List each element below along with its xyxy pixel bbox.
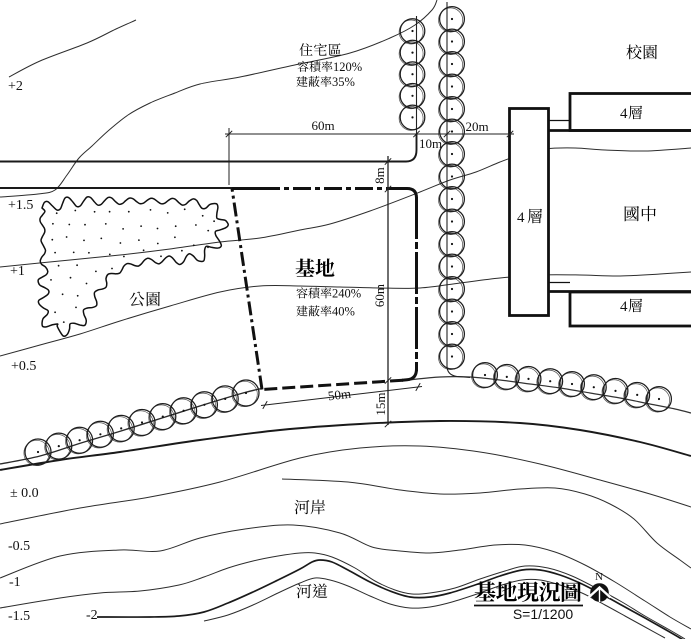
- svg-text:-1.5: -1.5: [8, 609, 30, 624]
- svg-text:+2: +2: [8, 79, 23, 94]
- svg-text:-0.5: -0.5: [8, 539, 30, 554]
- svg-text:+1: +1: [10, 264, 25, 279]
- svg-text:-2: -2: [86, 608, 98, 623]
- svg-text:10m: 10m: [419, 136, 442, 151]
- svg-text:4: 4: [620, 106, 628, 122]
- svg-text:60m: 60m: [311, 118, 334, 133]
- svg-text:240%: 240%: [332, 287, 361, 301]
- svg-text:± 0.0: ± 0.0: [10, 486, 39, 501]
- svg-text:15m: 15m: [373, 392, 388, 415]
- svg-text:35%: 35%: [332, 75, 355, 89]
- svg-text:4: 4: [620, 299, 628, 315]
- svg-text:8m: 8m: [372, 167, 387, 184]
- svg-text:4: 4: [517, 210, 525, 226]
- svg-text:+1.5: +1.5: [8, 198, 33, 213]
- svg-text:-1: -1: [9, 575, 21, 590]
- svg-text:50m: 50m: [327, 386, 352, 404]
- svg-text:+0.5: +0.5: [11, 359, 36, 374]
- svg-text:60m: 60m: [372, 284, 387, 307]
- svg-text:N: N: [595, 571, 603, 583]
- svg-text:20m: 20m: [465, 119, 488, 134]
- svg-text:40%: 40%: [332, 305, 355, 319]
- svg-text:120%: 120%: [333, 60, 362, 74]
- svg-text:S=1/1200: S=1/1200: [513, 606, 574, 622]
